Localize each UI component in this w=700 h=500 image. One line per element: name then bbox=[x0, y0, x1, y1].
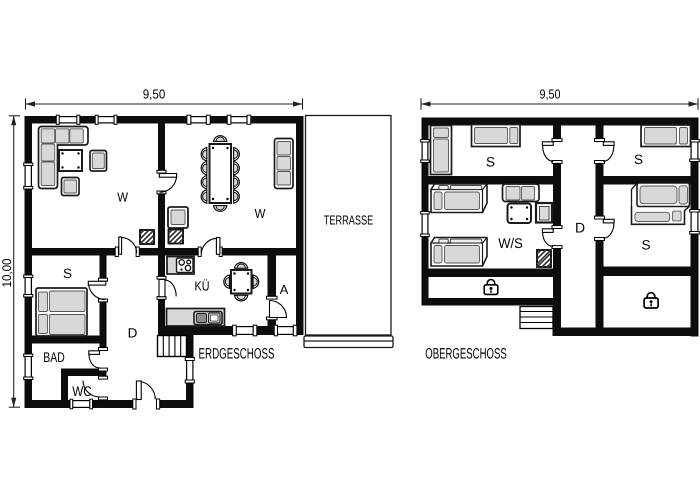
svg-text:9,50: 9,50 bbox=[143, 87, 166, 102]
svg-text:S: S bbox=[486, 155, 495, 170]
svg-text:S: S bbox=[641, 238, 650, 253]
svg-text:KÜ: KÜ bbox=[195, 279, 210, 294]
svg-text:TERRASSE: TERRASSE bbox=[324, 213, 374, 228]
svg-text:W/S: W/S bbox=[498, 235, 523, 251]
svg-text:W: W bbox=[255, 206, 266, 221]
svg-text:A: A bbox=[280, 282, 289, 297]
svg-text:WC: WC bbox=[72, 383, 92, 399]
svg-text:D: D bbox=[128, 326, 138, 341]
svg-text:S: S bbox=[63, 266, 72, 281]
svg-text:ERDGESCHOSS: ERDGESCHOSS bbox=[199, 346, 275, 363]
svg-text:D: D bbox=[575, 220, 585, 236]
svg-text:10,00: 10,00 bbox=[0, 258, 14, 287]
svg-text:BAD: BAD bbox=[43, 349, 65, 365]
svg-text:OBERGESCHOSS: OBERGESCHOSS bbox=[425, 346, 507, 363]
svg-text:S: S bbox=[634, 152, 643, 167]
svg-text:W: W bbox=[117, 190, 128, 205]
svg-text:9,50: 9,50 bbox=[540, 87, 561, 102]
